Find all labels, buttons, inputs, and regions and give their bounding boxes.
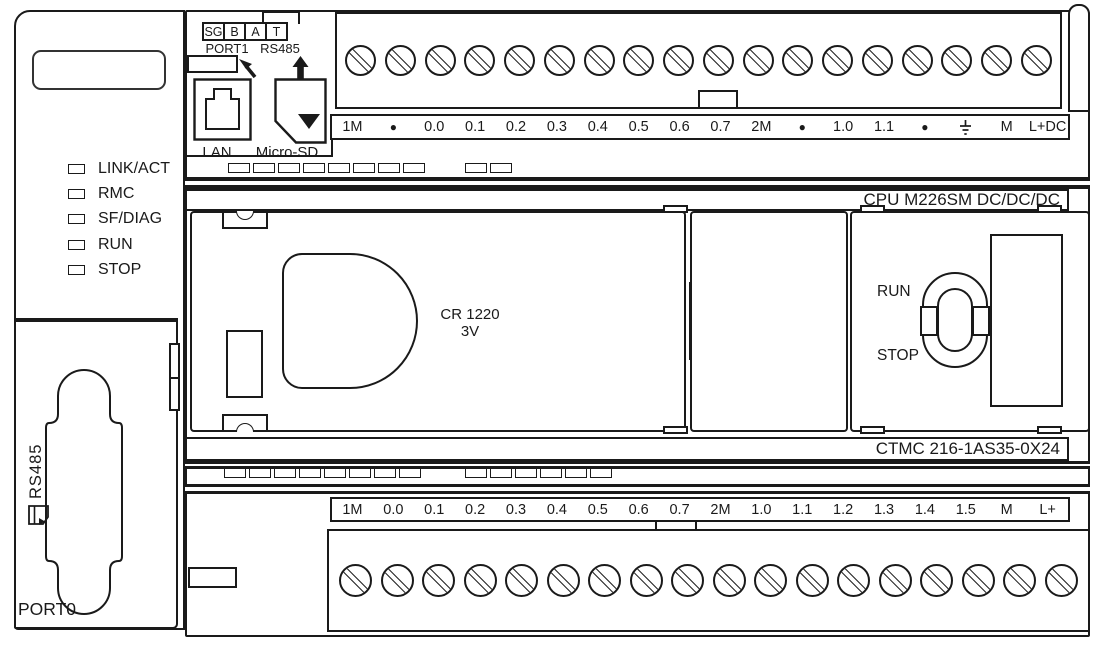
screw-terminal	[713, 564, 746, 597]
vent-slot	[490, 468, 512, 478]
terminal-label: 0.5	[577, 499, 618, 520]
terminal-label: 1.5	[945, 499, 986, 520]
screw-terminal	[588, 564, 621, 597]
terminal-label: 2M	[741, 116, 782, 138]
terminal-label: 0.6	[659, 116, 700, 138]
vent-slot	[540, 468, 562, 478]
panel-tab	[860, 205, 885, 213]
panel-tab	[1037, 205, 1062, 213]
terminal-label: 0.1	[414, 499, 455, 520]
terminal-label: 0.3	[496, 499, 537, 520]
terminal-label-ground	[945, 116, 986, 138]
vent-slot	[465, 468, 487, 478]
screw-slot	[924, 568, 949, 593]
port0-dsub-connector[interactable]	[44, 366, 124, 618]
vent-slot	[565, 468, 587, 478]
screw-terminal	[796, 564, 829, 597]
screw-slot	[785, 48, 810, 73]
vent-slot	[378, 163, 400, 173]
vent-slot	[303, 163, 325, 173]
vent-slot	[465, 163, 487, 173]
screw-slot	[586, 48, 611, 73]
screw-slot	[626, 48, 651, 73]
terminal-label: 0.1	[455, 116, 496, 138]
terminal-label: 1.1	[864, 116, 905, 138]
vent-slot	[515, 468, 537, 478]
vent-row	[224, 468, 421, 478]
screw-terminal	[584, 45, 615, 76]
screw-slot	[633, 568, 658, 593]
vent-slot	[274, 468, 296, 478]
vent-slot	[590, 468, 612, 478]
vent-slot	[253, 163, 275, 173]
screw-slot	[666, 48, 691, 73]
door-hinge-detail	[684, 282, 691, 360]
screw-terminal	[754, 564, 787, 597]
mounting-rail	[1068, 4, 1090, 112]
vent-slot	[349, 468, 371, 478]
latch-notch	[236, 211, 254, 220]
terminal-label: 1.1	[782, 499, 823, 520]
terminal-block-tab	[698, 90, 738, 107]
screw-terminal	[671, 564, 704, 597]
screw-slot	[348, 48, 373, 73]
screw-slot	[343, 568, 368, 593]
microsd-slot-icon[interactable]	[274, 78, 327, 144]
terminal-label: ●	[904, 116, 945, 138]
terminal-label: 1.2	[823, 499, 864, 520]
din-rail-band	[185, 484, 1090, 494]
battery-type: CR 1220	[420, 306, 520, 323]
terminal-label: 0.2	[496, 116, 537, 138]
screw-terminal	[941, 45, 972, 76]
module-name-bar: CTMC 216-1AS35-0X24	[185, 437, 1069, 461]
expansion-slot-cover	[990, 234, 1063, 407]
ground-icon	[958, 119, 973, 136]
screw-terminal	[464, 564, 497, 597]
door-latch	[222, 414, 268, 432]
screw-terminal	[544, 45, 575, 76]
led-indicator	[68, 164, 85, 174]
stop-label: STOP	[877, 347, 919, 365]
screw-slot	[865, 48, 890, 73]
middle-door	[690, 211, 848, 432]
rs485-tag-icon	[27, 504, 51, 528]
screw-terminal	[630, 564, 663, 597]
port0-rs485-label: RS485	[27, 444, 46, 499]
screw-slot	[882, 568, 907, 593]
terminal-label: L+DC	[1027, 116, 1068, 138]
panel-tab	[860, 426, 885, 434]
screw-terminal	[385, 45, 416, 76]
terminal-label: 0.2	[455, 499, 496, 520]
microsd-label: Micro-SD	[243, 144, 331, 161]
pin-cell: T	[265, 24, 286, 39]
screw-slot	[841, 568, 866, 593]
din-rail-band	[185, 177, 1090, 189]
screw-slot	[745, 48, 770, 73]
lan-label: LAN	[193, 144, 241, 161]
screw-slot	[1007, 568, 1032, 593]
screw-terminal	[464, 45, 495, 76]
vent-slot	[353, 163, 375, 173]
terminal-label: 0.7	[700, 116, 741, 138]
terminal-label: 1.0	[823, 116, 864, 138]
screw-slot	[944, 48, 969, 73]
screw-slot	[706, 48, 731, 73]
screw-terminal	[902, 45, 933, 76]
led-label: RUN	[98, 236, 133, 254]
led-row: RUN	[68, 238, 133, 251]
screw-slot	[592, 568, 617, 593]
led-row: LINK/ACT	[68, 162, 170, 175]
vent-slot	[299, 468, 321, 478]
toggle-side-tab	[920, 306, 938, 336]
led-indicator	[68, 189, 85, 199]
up-arrow-icon	[292, 56, 309, 80]
screw-terminal	[879, 564, 912, 597]
terminal-label: 1M	[332, 116, 373, 138]
terminal-label: M	[986, 116, 1027, 138]
led-indicator	[68, 265, 85, 275]
terminal-label: 0.7	[659, 499, 700, 520]
screw-terminal	[339, 564, 372, 597]
bottom-terminal-block	[327, 529, 1090, 632]
screw-slot	[984, 48, 1009, 73]
plc-module-diagram: LINK/ACTRMCSF/DIAGRUNSTOP SGBAT PORT1 RS…	[0, 0, 1093, 645]
screw-slot	[426, 568, 451, 593]
screw-slot	[427, 48, 452, 73]
terminal-label: 0.5	[618, 116, 659, 138]
led-label: RMC	[98, 185, 134, 203]
led-row: RMC	[68, 187, 134, 200]
run-label: RUN	[877, 283, 911, 301]
port1-label: PORT1	[198, 41, 256, 56]
screw-terminal	[422, 564, 455, 597]
screw-slot	[467, 48, 492, 73]
bottom-terminal-labels: 1M0.00.10.20.30.40.50.60.72M1.01.11.21.3…	[330, 497, 1070, 522]
terminal-label: 0.4	[577, 116, 618, 138]
screw-slot	[716, 568, 741, 593]
terminal-label: ●	[782, 116, 823, 138]
terminal-label: 1M	[332, 499, 373, 520]
label-slot	[187, 55, 238, 73]
terminal-label: 0.4	[536, 499, 577, 520]
screw-slot	[547, 48, 572, 73]
door-latch	[222, 211, 268, 229]
screw-slot	[904, 48, 929, 73]
screw-slot	[507, 48, 532, 73]
toggle-side-tab	[972, 306, 990, 336]
battery-voltage: 3V	[420, 323, 520, 340]
terminal-label: 0.6	[618, 499, 659, 520]
screw-slot	[675, 568, 700, 593]
led-row: SF/DIAG	[68, 213, 162, 226]
vent-slot	[328, 163, 350, 173]
screw-terminal	[381, 564, 414, 597]
screw-slot	[509, 568, 534, 593]
screw-terminal	[782, 45, 813, 76]
screw-terminal	[663, 45, 694, 76]
led-label: SF/DIAG	[98, 210, 162, 228]
led-indicator	[68, 240, 85, 250]
screw-slot	[758, 568, 783, 593]
top-terminal-labels: 1M●0.00.10.20.30.40.50.60.72M●1.01.1●ML+…	[330, 114, 1070, 140]
terminal-label: 0.0	[414, 116, 455, 138]
screw-terminal	[962, 564, 995, 597]
screw-terminal	[425, 45, 456, 76]
vent-slot	[403, 163, 425, 173]
screw-terminal	[623, 45, 654, 76]
pin-cell: SG	[204, 24, 223, 39]
port1-pin-table: SGBAT	[202, 22, 288, 41]
connector-zone-divider	[331, 139, 333, 157]
cursor-arrow-icon	[237, 57, 258, 80]
led-row: STOP	[68, 264, 141, 277]
screw-terminal	[743, 45, 774, 76]
screw-slot	[1024, 48, 1049, 73]
screw-slot	[1049, 568, 1074, 593]
terminal-label: 1.0	[741, 499, 782, 520]
port1-rs485-label: RS485	[256, 41, 304, 56]
terminal-label: 0.3	[536, 116, 577, 138]
screw-terminal	[345, 45, 376, 76]
battery-outline	[282, 253, 418, 389]
terminal-label: L+	[1027, 499, 1068, 520]
toggle-knob[interactable]	[937, 288, 973, 352]
screw-slot	[550, 568, 575, 593]
screw-terminal	[862, 45, 893, 76]
panel-tab	[663, 205, 688, 213]
latch-notch	[236, 423, 254, 432]
screw-terminal	[1045, 564, 1078, 597]
screw-terminal	[1021, 45, 1052, 76]
screw-slot	[799, 568, 824, 593]
screw-terminal	[822, 45, 853, 76]
screw-slot	[966, 568, 991, 593]
panel-edge-rail	[169, 343, 180, 411]
led-label: LINK/ACT	[98, 160, 170, 178]
screw-slot	[388, 48, 413, 73]
vent-row	[465, 163, 512, 173]
panel-tab	[663, 426, 688, 434]
vent-slot	[278, 163, 300, 173]
pin-cell: A	[244, 24, 265, 39]
screw-terminal	[504, 45, 535, 76]
terminal-label: M	[986, 499, 1027, 520]
vent-row	[228, 163, 425, 173]
panel-tab	[1037, 426, 1062, 434]
body-tab	[188, 567, 237, 588]
screw-terminal	[1003, 564, 1036, 597]
vent-slot	[228, 163, 250, 173]
vent-slot	[324, 468, 346, 478]
vent-slot	[249, 468, 271, 478]
cpu-name-bar: CPU M226SM DC/DC/DC	[185, 189, 1069, 211]
screw-slot	[467, 568, 492, 593]
port0-label: PORT0	[18, 599, 76, 620]
battery-label: CR 1220 3V	[420, 306, 520, 340]
vent-slot	[224, 468, 246, 478]
screw-terminal	[547, 564, 580, 597]
terminal-label: 1.4	[904, 499, 945, 520]
door-recess	[226, 330, 263, 398]
led-indicator	[68, 214, 85, 224]
terminal-label: 1.3	[864, 499, 905, 520]
screw-slot	[384, 568, 409, 593]
lan-port-icon[interactable]	[193, 78, 252, 144]
display-window	[32, 50, 166, 90]
screw-terminal	[837, 564, 870, 597]
terminal-label: 2M	[700, 499, 741, 520]
screw-slot	[825, 48, 850, 73]
pin-cell: B	[223, 24, 244, 39]
terminal-label: ●	[373, 116, 414, 138]
terminal-label: 0.0	[373, 499, 414, 520]
led-label: STOP	[98, 261, 141, 279]
screw-terminal	[920, 564, 953, 597]
screw-terminal	[981, 45, 1012, 76]
vent-row	[465, 468, 612, 478]
screw-terminal	[505, 564, 538, 597]
vent-slot	[490, 163, 512, 173]
vent-slot	[374, 468, 396, 478]
vent-slot	[399, 468, 421, 478]
screw-terminal	[703, 45, 734, 76]
